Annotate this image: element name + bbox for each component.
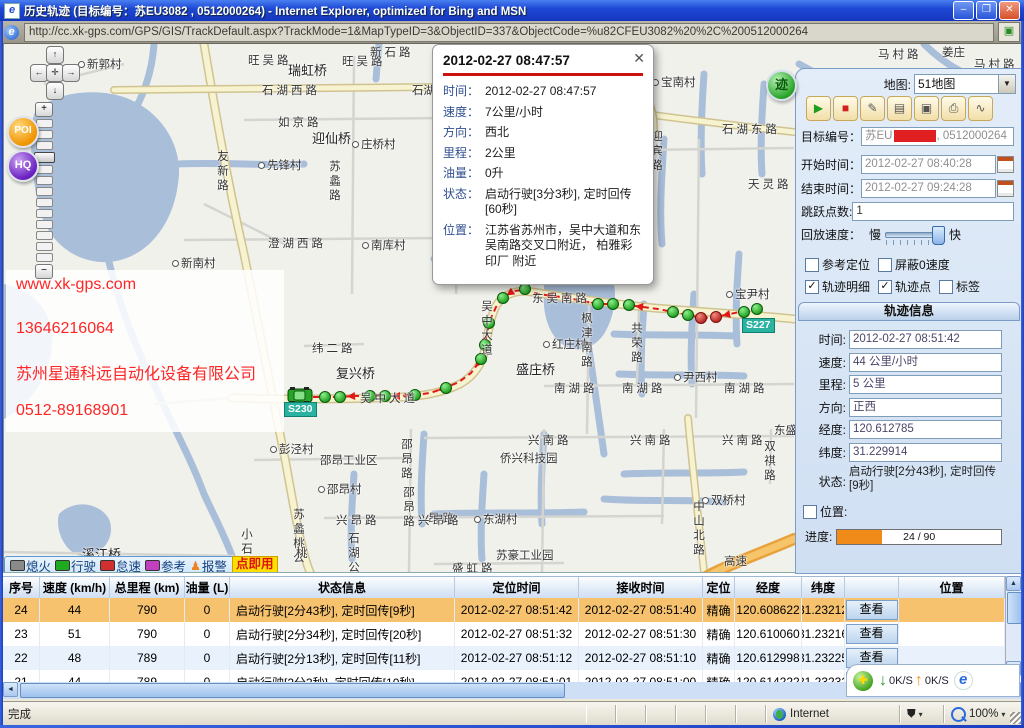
fast-label: 快 [949,226,961,243]
track-info-value: 44 公里/小时 [849,353,1002,372]
checkbox-option: 屏蔽0速度 [878,256,950,273]
map-label: 邵昂工业区 [320,452,378,468]
playback-speed-label: 回放速度： [801,226,861,243]
popup-title: 2012-02-27 08:47:57 [443,53,643,68]
map-label: 复兴桥 [336,363,375,382]
map-label: 瑞虹桥 [288,60,327,79]
speed-slider[interactable] [885,232,945,238]
road-number-badge: S230 [284,402,317,417]
ruler-button[interactable]: ▤ [887,96,912,121]
table-cell: 44 [40,598,110,622]
checkbox-label: 屏蔽0速度 [895,256,950,273]
map-label: 新石路 [370,44,414,60]
column-header[interactable]: 总里程 (km) [110,577,185,598]
checkbox[interactable]: ✓ [878,280,892,294]
option-checkboxes-row: 参考定位屏蔽0速度 [796,256,1022,273]
table-cell: 48 [40,646,110,670]
table-cell: 0 [185,598,230,622]
zoom-level-rung[interactable] [36,141,53,150]
map-label: 苏豪工业园 [496,547,554,563]
title-bar: e 历史轨迹 (目标编号：苏EU3082 , 0512000264) - Int… [0,0,1024,21]
map-label: 宝南村 [652,74,696,90]
checkbox-option: ✓轨迹点 [878,278,931,295]
table-vertical-scrollbar[interactable]: ▲ ▼ [1005,576,1021,676]
map-label: 中山北路 [690,500,706,558]
checkbox[interactable]: ✓ [805,280,819,294]
map-label: 双祺路 [761,440,777,484]
skip-points-field[interactable]: 1 [852,202,1014,221]
table-cell: 2012-02-27 08:51:32 [455,622,579,646]
scrollbar-thumb[interactable] [20,683,565,698]
table-cell: 31.23225 [802,646,845,670]
pan-up-button[interactable]: ↑ [46,46,64,64]
car-status-icon [100,560,115,571]
slider-handle[interactable] [932,226,945,245]
map-label: 桃 [296,545,308,561]
map-label: 兴昂路 [336,512,380,528]
map-label: 纬二路 [312,340,356,356]
map-label: 友新路 [214,150,230,194]
map-label: 迎仙桥 [312,128,351,147]
table-cell: 120.608622 [735,598,802,622]
zoom-level-rung[interactable] [36,187,53,196]
column-header[interactable]: 位置 [899,577,1005,598]
popup-field: 时间：2012-02-27 08:47:57 [443,84,643,100]
legend-item: 行驶 [55,556,96,572]
table-cell: 2012-02-27 08:51:40 [579,598,703,622]
upload-speed: 0K/S [925,675,949,687]
slow-label: 慢 [869,226,881,243]
track-point[interactable] [608,299,619,310]
download-arrow-icon: ↓ [879,672,887,690]
map-label: 宝尹村 [726,286,770,302]
ie-icon: e [4,25,19,40]
address-bar: e http://cc.xk-gps.com/GPS/GIS/TrackDefa… [0,21,1024,44]
hq-button[interactable]: HQ [7,150,39,182]
column-header[interactable]: 经度 [735,577,802,598]
track-point-popup: 2012-02-27 08:47:57 ✕ 时间：2012-02-27 08:4… [432,44,654,285]
map-label: 双桥村 [702,492,746,508]
zoom-level-rung[interactable] [36,209,53,218]
map-label: 南湖路 [724,380,768,396]
map-label: 新南村 [172,255,216,271]
map-label: 兴南路 [630,432,674,448]
track-point[interactable] [683,310,694,321]
table-cell: 51 [40,622,110,646]
window-title: 历史轨迹 (目标编号：苏EU3082 , 0512000264) - Inter… [24,3,951,19]
erase-button[interactable]: ✎ [860,96,885,121]
status-bar: 完成 Internet ⛊▾ 100% ▾ [0,701,1024,726]
calendar-icon[interactable] [997,180,1014,197]
poi-button[interactable]: POI [7,116,39,148]
track-point[interactable] [498,293,509,304]
pan-right-button[interactable]: → [62,64,80,82]
table-cell: 查看 [845,622,899,646]
map-label: 吴中大道 [360,390,418,406]
table-row[interactable]: 24447900启动行驶[2分43秒], 定时回传[9秒]2012-02-27 … [3,598,1005,623]
track-info-row: 时间:2012-02-27 08:51:42 [796,330,1022,349]
zoom-level-rung[interactable] [36,242,53,251]
map-label: 天灵路 [748,176,792,192]
track-point[interactable] [441,383,452,394]
table-cell: 精确 [703,598,735,622]
chevron-down-icon[interactable]: ▼ [998,75,1015,93]
table-cell: 120.610060 [735,622,802,646]
map-label: 邵昂村 [318,481,362,497]
track-point[interactable] [520,284,531,295]
map-label: 新郭村 [78,56,122,72]
end-time-field[interactable]: 2012-02-27 09:24:28 [861,179,996,198]
table-cell: 启动行驶[2分34秒], 定时回传[20秒] [230,622,455,646]
option-checkboxes-row: ✓轨迹明细✓轨迹点标签 [796,278,1022,295]
browser-window: e 历史轨迹 (目标编号：苏EU3082 , 0512000264) - Int… [0,0,1024,728]
car-status-icon [55,560,70,571]
map-label: 石湖公 [345,532,361,572]
panel-collapse-button[interactable]: 迹 [766,70,797,101]
network-speed-panel: ✚ ↓ 0K/S ↑ 0K/S e [846,664,1020,697]
map-label: 共荣路 [628,322,644,366]
progress-label: 进度: [805,528,832,545]
legend-item: ♟报警 [190,556,227,572]
window-border [0,21,3,728]
scroll-left-arrow[interactable]: ◄ [3,682,18,697]
checkbox-option: 参考定位 [805,256,870,273]
end-time-label: 结束时间： [801,180,861,197]
plate-redaction [894,130,936,142]
map-label: 姜庄 [942,44,965,60]
control-panel: 地图: 51地图 ▼ ▶■✎▤▣⎙∿ 目标编号： 苏EU, 0512000264… [795,68,1023,574]
target-id-label: 目标编号： [801,128,861,145]
checkbox-label: 轨迹明细 [822,278,870,295]
progress-text: 24 / 90 [837,530,1001,544]
map-label: 东盛 [774,422,797,438]
popup-field: 速度：7公里/小时 [443,105,643,121]
map-label: 枫津南路 [578,312,594,370]
table-cell: 启动行驶[2分13秒], 定时回传[11秒] [230,646,455,670]
map-label: 石湖西路 [262,82,320,98]
track-info-header: 轨迹信息 [798,302,1020,321]
table-cell: 790 [110,622,185,646]
map-label: 南湖路 [622,380,666,396]
checkbox[interactable] [805,258,819,272]
zoom-level-rung[interactable] [36,231,53,240]
measure-area-button[interactable]: ▣ [914,96,939,121]
column-header[interactable]: 油量 (L) [185,577,230,598]
map-label: 澄湖西路 [268,235,326,251]
table-header-row: 序号速度 (km/h)总里程 (km)油量 (L)状态信息定位时间接收时间定位经… [3,576,1005,599]
map-label: 苏蠡路 [326,160,342,204]
checkbox[interactable] [878,258,892,272]
map-label: 邵昂路 [398,438,414,482]
legend-item: 熄火 [10,556,51,572]
status-text: 完成 [0,706,586,722]
track-point[interactable] [739,307,750,318]
minimize-button[interactable]: – [953,1,974,20]
checkbox-option: ✓轨迹明细 [805,278,870,295]
column-header[interactable]: 接收时间 [579,577,703,598]
upload-arrow-icon: ↑ [915,672,923,690]
watermark-line: 苏州星通科远自动化设备有限公司 [16,360,256,384]
track-info-row: 方向:正西 [796,398,1022,417]
table-cell: 24 [3,598,40,622]
table-cell: 2012-02-27 08:51:10 [579,646,703,670]
column-header[interactable] [845,577,899,598]
checkbox-label: 标签 [956,278,980,295]
track-point[interactable] [752,304,763,315]
skip-points-label: 跳跃点数: [801,203,852,220]
table-cell: 120.612998 [735,646,802,670]
track-info-value: 31.229914 [849,443,1002,462]
checkbox-label: 轨迹点 [895,278,931,295]
table-cell [899,622,1005,646]
table-cell: 2012-02-27 08:51:42 [455,598,579,622]
track-info-value: 2012-02-27 08:51:42 [849,330,1002,349]
table-cell: 790 [110,598,185,622]
download-speed: 0K/S [889,675,913,687]
column-header[interactable]: 速度 (km/h) [40,577,110,598]
print-button[interactable]: ⎙ [941,96,966,121]
map-label: 侨兴科技园 [500,450,558,466]
popup-field: 状态：启动行驶[3分3秒], 定时回传[60秒] [443,187,643,218]
internet-zone-label: Internet [790,708,829,720]
close-button[interactable]: ✕ [999,1,1020,20]
popup-field: 里程：2公里 [443,146,643,162]
popup-field: 油量：0升 [443,166,643,182]
map-label: 南库村 [362,237,406,253]
scrollbar-thumb[interactable] [1007,592,1022,624]
status-value: 启动行驶[2分43秒], 定时回传[9秒] [849,465,1004,493]
playback-toolbar: ▶■✎▤▣⎙∿ [796,96,1022,121]
track-info-row: 速度:44 公里/小时 [796,353,1022,372]
track-point[interactable] [624,300,635,311]
progress-bar: 24 / 90 [836,529,1002,545]
legend-item: 参考 [145,556,186,572]
popup-close-icon[interactable]: ✕ [633,51,645,65]
alarm-person-icon: ♟ [190,561,201,571]
column-header[interactable]: 纬度 [802,577,845,598]
map-label: 邵昂路 [400,486,416,530]
popup-field: 位置：江苏省苏州市，吴中大道和东吴南路交叉口附近， 柏雅彩印厂 附近 [443,223,643,270]
map-label: 石湖东路 [722,121,780,137]
table-cell [899,598,1005,622]
table-cell: 22 [3,646,40,670]
map-label: 东吴南路 [532,290,590,306]
table-cell: 789 [110,646,185,670]
start-time-label: 开始时间： [801,156,861,173]
zoom-level-rung[interactable] [36,220,53,229]
map-label: 东湖村 [474,511,518,527]
location-label: 位置: [820,503,847,520]
magnifier-icon [951,707,966,722]
map-label: 盛虹路 [452,560,496,572]
map-label: 庄桥村 [352,136,396,152]
play-button[interactable]: ▶ [806,96,831,121]
column-header[interactable]: 状态信息 [230,577,455,598]
track-info-value: 正西 [849,398,1002,417]
car-status-icon [10,560,25,571]
zoom-in-button[interactable]: + [35,102,53,117]
column-header[interactable]: 定位时间 [455,577,579,598]
popup-divider [443,73,643,76]
table-cell: 31.23216 [802,622,845,646]
zoom-level-rung[interactable] [36,253,53,262]
table-cell: 0 [185,646,230,670]
view-button[interactable]: 查看 [846,624,898,644]
map-label: 南湖路 [554,380,598,396]
column-header[interactable]: 序号 [3,577,40,598]
click-to-use-hint[interactable]: 点即用 [232,556,278,572]
table-cell: 23 [3,622,40,646]
target-id-field[interactable]: 苏EU, 0512000264 [861,127,1014,146]
track-info-value: 5 公里 [849,375,1002,394]
stop-button[interactable]: ■ [833,96,858,121]
track-info-row: 纬度:31.229914 [796,443,1022,462]
table-cell: 31.23212 [802,598,845,622]
road-number-badge: S227 [742,318,775,333]
map-label: 旺吴路 [248,52,292,68]
map-label: 高速 [724,553,747,569]
ie-icon: e [954,671,973,690]
track-info-value: 120.612785 [849,420,1002,439]
zoom-level: 100% [969,708,998,720]
table-cell: 精确 [703,646,735,670]
table-cell: 0 [185,622,230,646]
maximize-button[interactable]: ❐ [976,1,997,20]
map-label: 兴南路 [722,432,766,448]
track-info-row: 经度:120.612785 [796,420,1022,439]
window-ie-icon: e [4,3,20,19]
table-cell: 查看 [845,598,899,622]
map-label: 尹西村 [674,369,718,385]
legend-item: 怠速 [100,556,141,572]
start-time-field[interactable]: 2012-02-27 08:40:28 [861,155,996,174]
popup-field: 方向：西北 [443,125,643,141]
column-header[interactable]: 定位 [703,577,735,598]
map-type-value: 51地图 [915,75,998,93]
view-button[interactable]: 查看 [846,600,898,620]
internet-zone-icon [773,708,786,721]
zoom-level-rung[interactable] [36,176,53,185]
calendar-icon[interactable] [997,156,1014,173]
pan-down-button[interactable]: ↓ [46,82,64,100]
map-label: 兴南路 [528,432,572,448]
map-label: 马村路 [878,46,922,62]
map-label: 先锋村 [258,157,302,173]
car-status-icon [145,560,160,571]
map-select-label: 地图: [884,76,911,93]
location-checkbox[interactable] [803,505,817,519]
watermark-line: 0512-89168901 [16,402,128,420]
table-cell: 启动行驶[2分43秒], 定时回传[9秒] [230,598,455,622]
zoom-level-rung[interactable] [36,198,53,207]
status-label: 状态: [796,465,846,490]
track-point[interactable] [335,392,346,403]
checkbox[interactable] [939,280,953,294]
checkbox-option: 标签 [939,278,980,295]
map-label: 盛庄桥 [516,359,555,378]
table-cell: 2012-02-27 08:51:12 [455,646,579,670]
track-info-row: 里程:5 公里 [796,375,1022,394]
status-legend-bar: 熄火行驶怠速参考♟报警 [4,556,237,572]
track-point[interactable] [711,312,722,323]
table-cell: 2012-02-27 08:51:30 [579,622,703,646]
vendor-watermark: www.xk-gps.com 13646216064 苏州星通科远自动化设备有限… [6,270,284,432]
chevron-down-icon: ▾ [1001,710,1005,719]
popup-fields: 时间：2012-02-27 08:47:57速度：7公里/小时方向：西北里程：2… [443,84,643,269]
table-row[interactable]: 23517900启动行驶[2分34秒], 定时回传[20秒]2012-02-27… [3,622,1005,647]
track-point[interactable] [696,313,707,324]
page-action-button[interactable]: ▣ [998,22,1020,42]
url-field[interactable]: http://cc.xk-gps.com/GPS/GIS/TrackDefaul… [24,23,994,42]
map-type-dropdown[interactable]: 51地图 ▼ [914,74,1016,94]
watermark-line: 13646216064 [16,320,114,338]
track-point[interactable] [668,307,679,318]
map-label: 彭泾村 [270,441,314,457]
map-label: 兴昂路 [418,512,462,528]
speed-curve-button[interactable]: ∿ [968,96,993,121]
track-point[interactable] [593,299,604,310]
track-point[interactable] [320,392,331,403]
map-label: 吴中大道 [478,300,494,358]
network-orb-icon: ✚ [853,671,873,691]
zoom-out-button[interactable]: − [35,264,53,279]
checkbox-label: 参考定位 [822,256,870,273]
table-cell: 精确 [703,622,735,646]
protected-mode-icon[interactable]: ⛊▾ [900,705,944,723]
